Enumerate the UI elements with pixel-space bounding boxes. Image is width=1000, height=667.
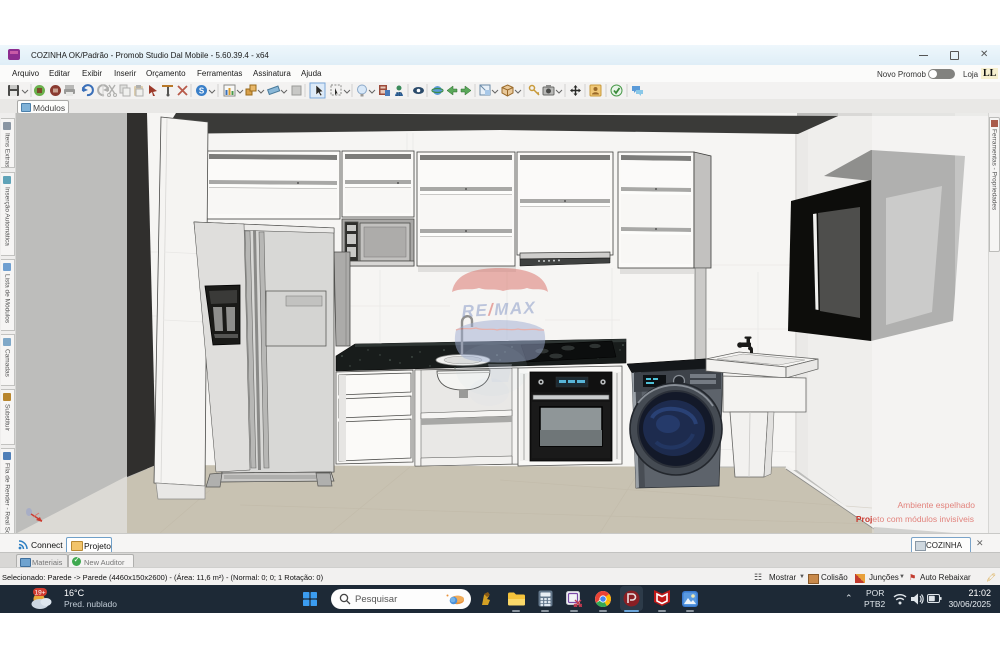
svg-text:RE/MAX: RE/MAX (461, 298, 537, 321)
svg-text:Ambiente espelhado: Ambiente espelhado (897, 500, 975, 510)
svg-text:S: S (199, 87, 205, 96)
svg-text:19+: 19+ (34, 590, 45, 597)
svg-text:3D: 3D (396, 92, 403, 98)
svg-text:Projeto com módulos invisíveis: Projeto com módulos invisíveis (856, 514, 974, 524)
